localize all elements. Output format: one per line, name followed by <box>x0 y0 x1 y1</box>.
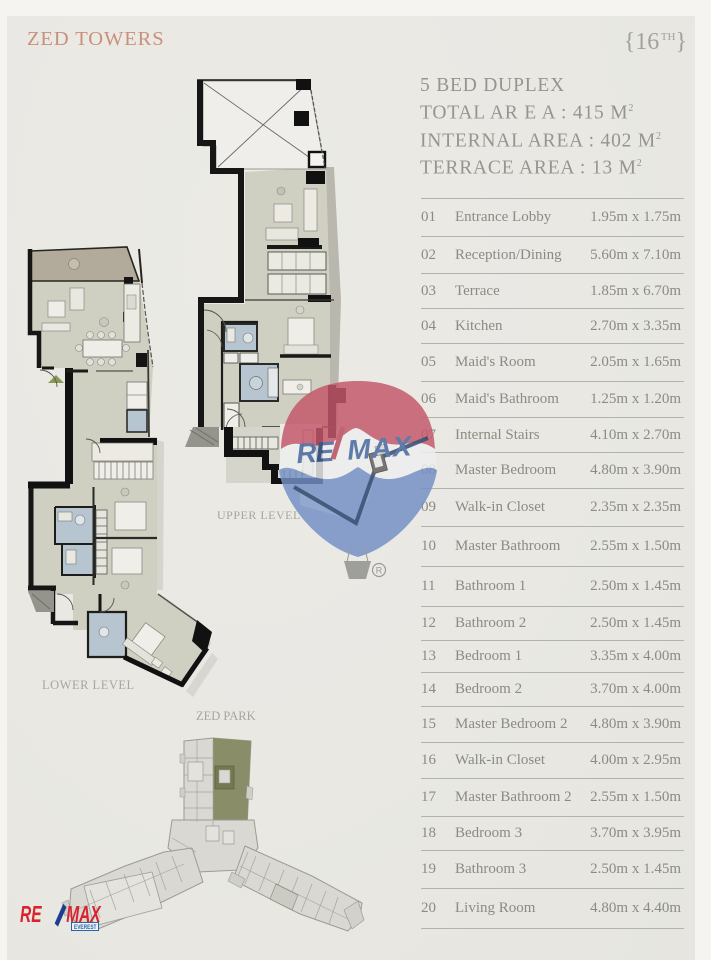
svg-text:R: R <box>376 566 383 576</box>
svg-text:MAX: MAX <box>346 430 415 466</box>
svg-text:RE: RE <box>295 436 336 470</box>
svg-text:RE: RE <box>20 902 42 928</box>
svg-text:EVEREST: EVEREST <box>74 924 97 931</box>
